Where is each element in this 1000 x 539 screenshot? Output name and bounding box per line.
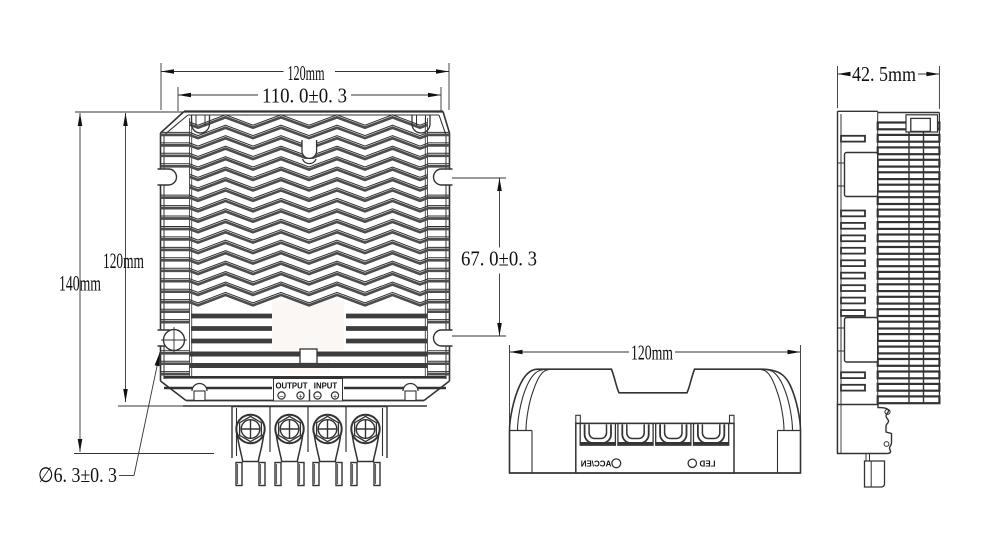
svg-text:140mm: 140mm bbox=[59, 271, 101, 296]
svg-text:ACC/EN: ACC/EN bbox=[580, 459, 611, 468]
svg-text:120mm: 120mm bbox=[288, 61, 325, 85]
svg-text:+: + bbox=[333, 393, 337, 400]
svg-text:120mm: 120mm bbox=[103, 248, 144, 273]
svg-text:120mm: 120mm bbox=[631, 341, 673, 365]
svg-text:INPUT: INPUT bbox=[314, 382, 338, 391]
svg-text:67. 0±0. 3: 67. 0±0. 3 bbox=[461, 247, 537, 271]
svg-text:–: – bbox=[316, 393, 320, 400]
svg-text:OUTPUT: OUTPUT bbox=[275, 382, 307, 391]
svg-text:∅6. 3±0. 3: ∅6. 3±0. 3 bbox=[38, 463, 117, 487]
svg-text:110. 0±0. 3: 110. 0±0. 3 bbox=[262, 84, 347, 108]
svg-text:+: + bbox=[298, 393, 302, 400]
svg-text:–: – bbox=[280, 393, 284, 400]
svg-text:42. 5mm: 42. 5mm bbox=[852, 62, 916, 86]
svg-text:LED: LED bbox=[699, 459, 715, 468]
